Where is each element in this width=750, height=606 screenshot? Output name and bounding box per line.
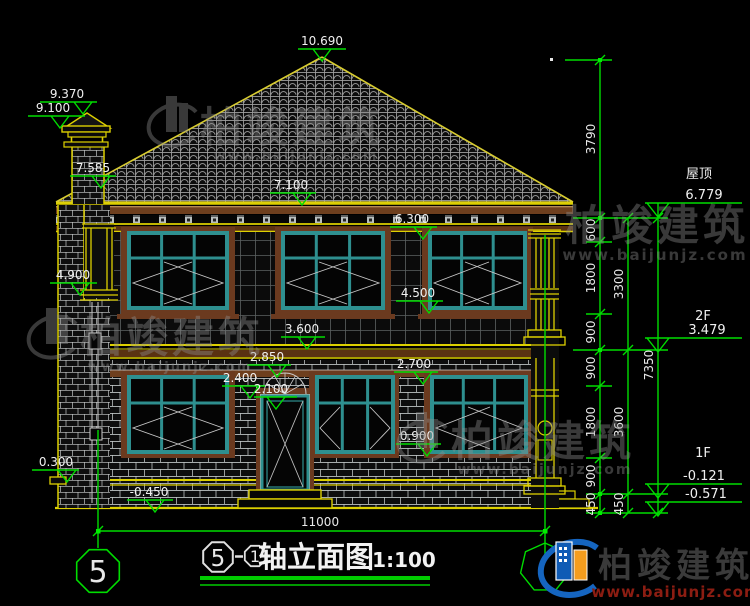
svg-text:-0.121: -0.121 [683,469,725,484]
window-1f-left [121,371,235,458]
axis-bubble-left: 5 [77,550,120,593]
svg-text:900: 900 [584,321,598,344]
svg-text:2.700: 2.700 [397,357,431,371]
svg-text:1800: 1800 [584,263,598,294]
door-steps [238,490,332,508]
svg-text:4.900: 4.900 [56,268,90,282]
svg-text:0.300: 0.300 [39,455,73,469]
svg-text:www.baijunjz.com: www.baijunjz.com [458,462,633,478]
dimension-chain2-labels: 3300 3600 450 [612,269,626,516]
svg-text:4.500: 4.500 [401,286,435,300]
title-block: 5 1 轴立面图 1:100 [200,540,436,585]
title-axis-start: 5 [211,546,226,572]
entry-door [256,388,314,490]
svg-text:www.baijunjz.com: www.baijunjz.com [214,149,379,164]
brand-logo: 柏竣建筑 www.baijunjz.com [541,542,750,601]
svg-text:6.300: 6.300 [395,212,429,226]
svg-text:7350: 7350 [642,350,656,381]
svg-text:3300: 3300 [612,269,626,300]
svg-text:柏竣建筑: 柏竣建筑 [451,417,635,466]
svg-text:2.100: 2.100 [254,382,288,396]
dimension-chain3-labels: 7350 [642,350,656,381]
watermark-right: 柏竣建筑 www.baijunjz.com [562,201,749,264]
chimney [62,113,110,204]
svg-text:7.585: 7.585 [76,161,110,175]
svg-text:2F: 2F [695,309,711,324]
window-2f-left [117,227,239,319]
svg-text:10.690: 10.690 [301,34,343,48]
svg-text:3790: 3790 [584,124,598,155]
svg-text:7.100: 7.100 [274,178,308,192]
svg-text:1F: 1F [695,446,711,461]
logo-brand-text: 柏竣建筑 [598,546,750,586]
svg-text:900: 900 [584,357,598,380]
drawing-scale: 1:100 [372,548,436,572]
svg-text:-0.571: -0.571 [685,487,727,502]
svg-text:450: 450 [612,493,626,516]
window-2f-center [271,227,395,319]
drawing-title: 轴立面图 [258,540,374,574]
svg-text:www.baijunjz.com: www.baijunjz.com [562,246,747,264]
window-1f-center [309,371,399,458]
svg-text:3.479: 3.479 [688,323,725,338]
floor-marker-2f: 2F 3.479 [645,309,742,352]
dim-overall-width: 11000 [301,515,339,529]
svg-text:www.baijunjz.com: www.baijunjz.com [88,360,253,375]
svg-text:屋顶: 屋顶 [686,167,712,182]
svg-text:柏竣建筑: 柏竣建筑 [565,201,749,250]
window-2f-right [418,227,537,319]
svg-text:柏竣建筑: 柏竣建筑 [80,313,264,362]
svg-text:-0.450: -0.450 [130,485,169,499]
svg-text:450: 450 [584,493,598,516]
svg-text:5: 5 [88,555,107,590]
logo-url-text: www.baijunjz.com [591,583,750,601]
elevation-drawing-canvas: 11000 3790 600 1800 900 900 1800 900 450… [0,0,750,606]
svg-text:柏竣建筑: 柏竣建筑 [200,103,384,152]
svg-text:9.100: 9.100 [36,101,70,115]
svg-text:3.600: 3.600 [285,322,319,336]
marker-peak: 10.690 [298,34,346,61]
svg-text:9.370: 9.370 [50,87,84,101]
cad-linework: 11000 3790 600 1800 900 900 1800 900 450… [0,0,750,606]
